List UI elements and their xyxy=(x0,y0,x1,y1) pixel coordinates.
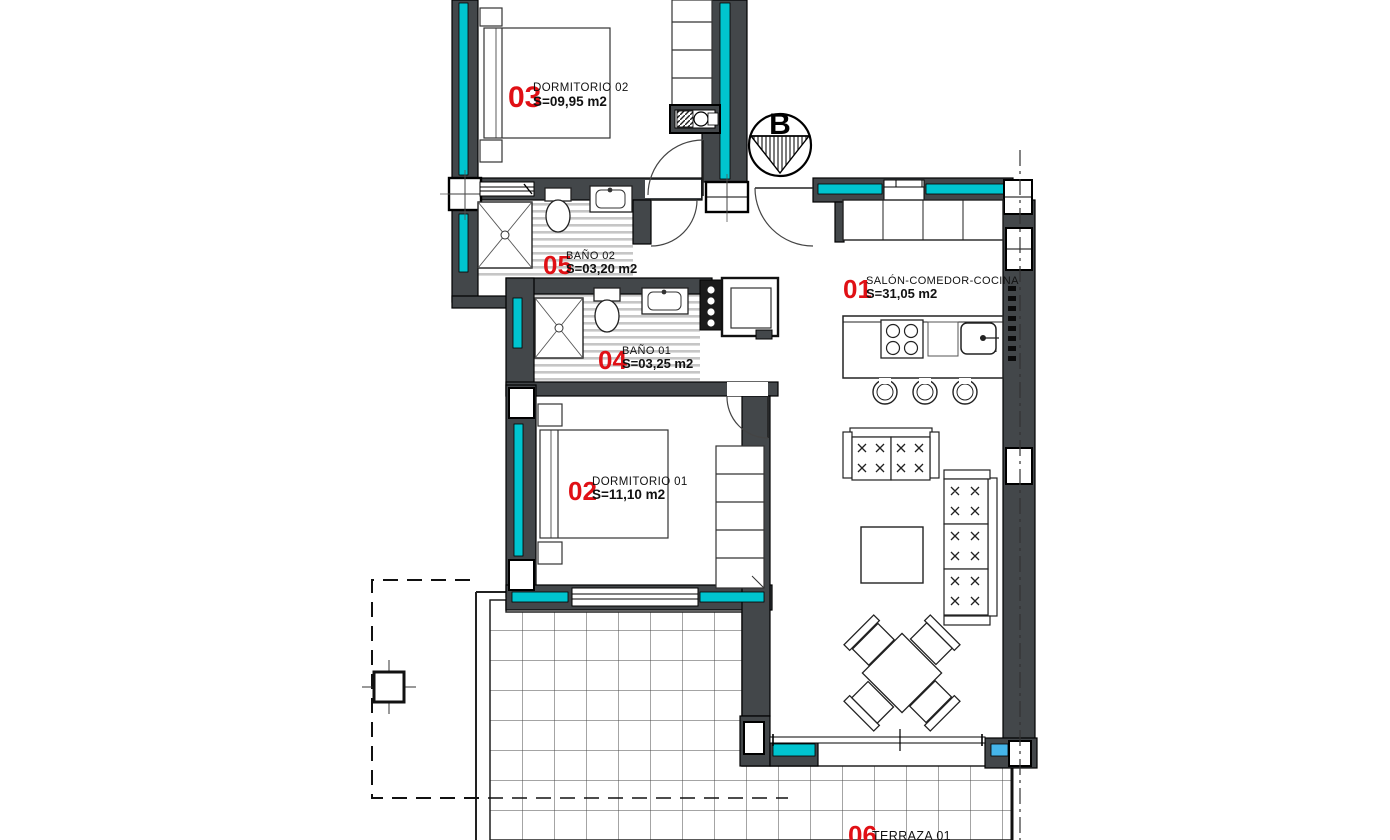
window xyxy=(572,588,698,606)
room-area: S=03,20 m2 xyxy=(566,261,637,276)
floor-plan-page: B 03 DORMITORIO 02 S=09,95 m2 05 BAÑO 02… xyxy=(0,0,1390,840)
washbasin xyxy=(590,186,632,212)
shower xyxy=(478,202,532,268)
entry-door xyxy=(755,188,813,246)
room-name: TERRAZA 01 xyxy=(872,829,951,840)
nightstand xyxy=(538,542,562,564)
column xyxy=(706,174,748,222)
compass-b: B xyxy=(749,108,811,176)
column xyxy=(509,560,534,590)
floor-plan: B 03 DORMITORIO 02 S=09,95 m2 05 BAÑO 02… xyxy=(0,0,1390,840)
window xyxy=(884,180,924,200)
coffee-table xyxy=(861,527,923,583)
room-area: S=03,25 m2 xyxy=(622,356,693,371)
column xyxy=(1006,448,1032,484)
vent-shaft xyxy=(700,280,722,330)
room-area: S=09,95 m2 xyxy=(533,94,607,109)
vent-shaft xyxy=(670,105,720,133)
nightstand xyxy=(480,140,502,162)
sofa-two-seat xyxy=(843,428,939,480)
nightstand xyxy=(480,8,502,26)
worktop-board xyxy=(928,322,958,356)
toilet xyxy=(545,188,571,232)
fridge xyxy=(722,278,778,339)
bar-stool xyxy=(953,378,977,404)
room-label-salon: 01 SALÓN-COMEDOR-COCINA S=31,05 m2 xyxy=(843,274,1019,304)
nightstand xyxy=(538,404,562,426)
column xyxy=(362,660,416,714)
bar-stools xyxy=(873,378,977,404)
kitchen-island xyxy=(843,316,1003,378)
sofa-three-seat xyxy=(944,470,997,625)
column xyxy=(1006,228,1032,270)
washbasin xyxy=(642,288,688,314)
column xyxy=(744,722,764,754)
window xyxy=(480,182,534,196)
cooktop xyxy=(881,320,923,358)
interior-door xyxy=(651,200,697,246)
room-area: S=11,10 m2 xyxy=(592,487,665,502)
column xyxy=(1004,180,1032,214)
interior-door xyxy=(645,140,703,198)
shower xyxy=(535,298,583,358)
wardrobe xyxy=(716,446,764,588)
kitchen-sink xyxy=(961,323,999,354)
toilet xyxy=(594,288,620,332)
kitchen-cabinets xyxy=(843,200,1003,240)
wardrobe xyxy=(672,0,712,105)
bar-stool xyxy=(913,378,937,404)
room-label-dormitorio-01: 02 DORMITORIO 01 S=11,10 m2 xyxy=(568,476,688,506)
compass-label: B xyxy=(769,108,791,141)
room-name: DORMITORIO 02 xyxy=(533,82,629,94)
column xyxy=(509,388,534,418)
bar-stool xyxy=(873,378,897,404)
room-area: S=31,05 m2 xyxy=(866,286,937,301)
